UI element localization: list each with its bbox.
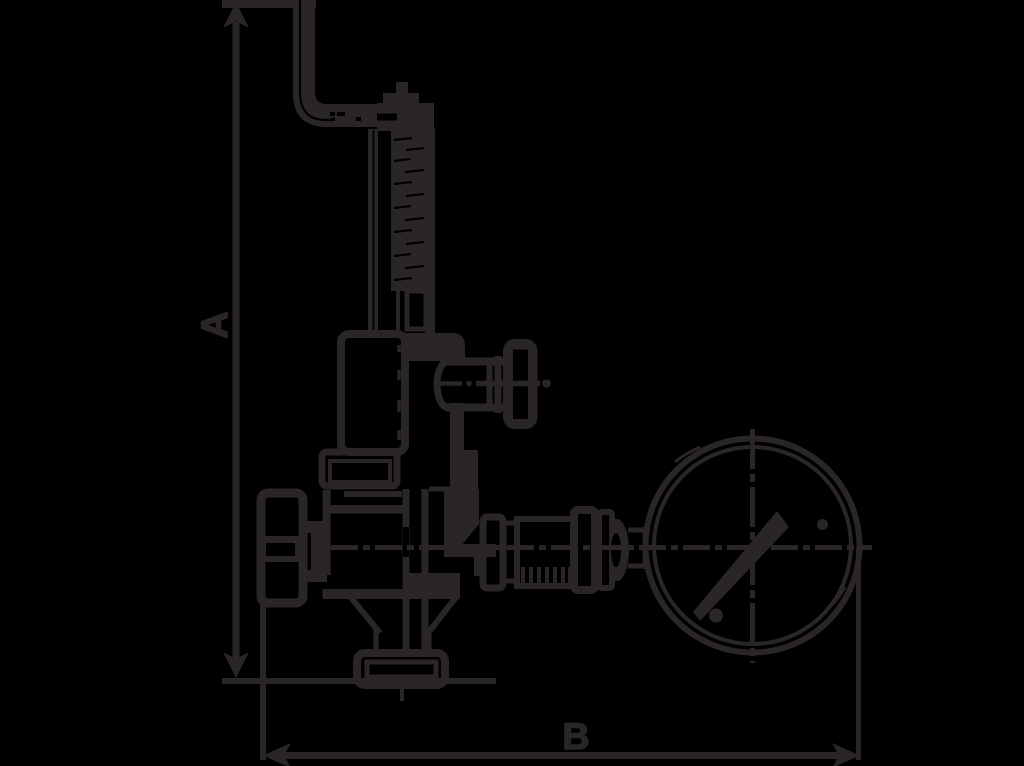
svg-text:B: B (562, 715, 589, 757)
svg-text:A: A (193, 311, 235, 338)
